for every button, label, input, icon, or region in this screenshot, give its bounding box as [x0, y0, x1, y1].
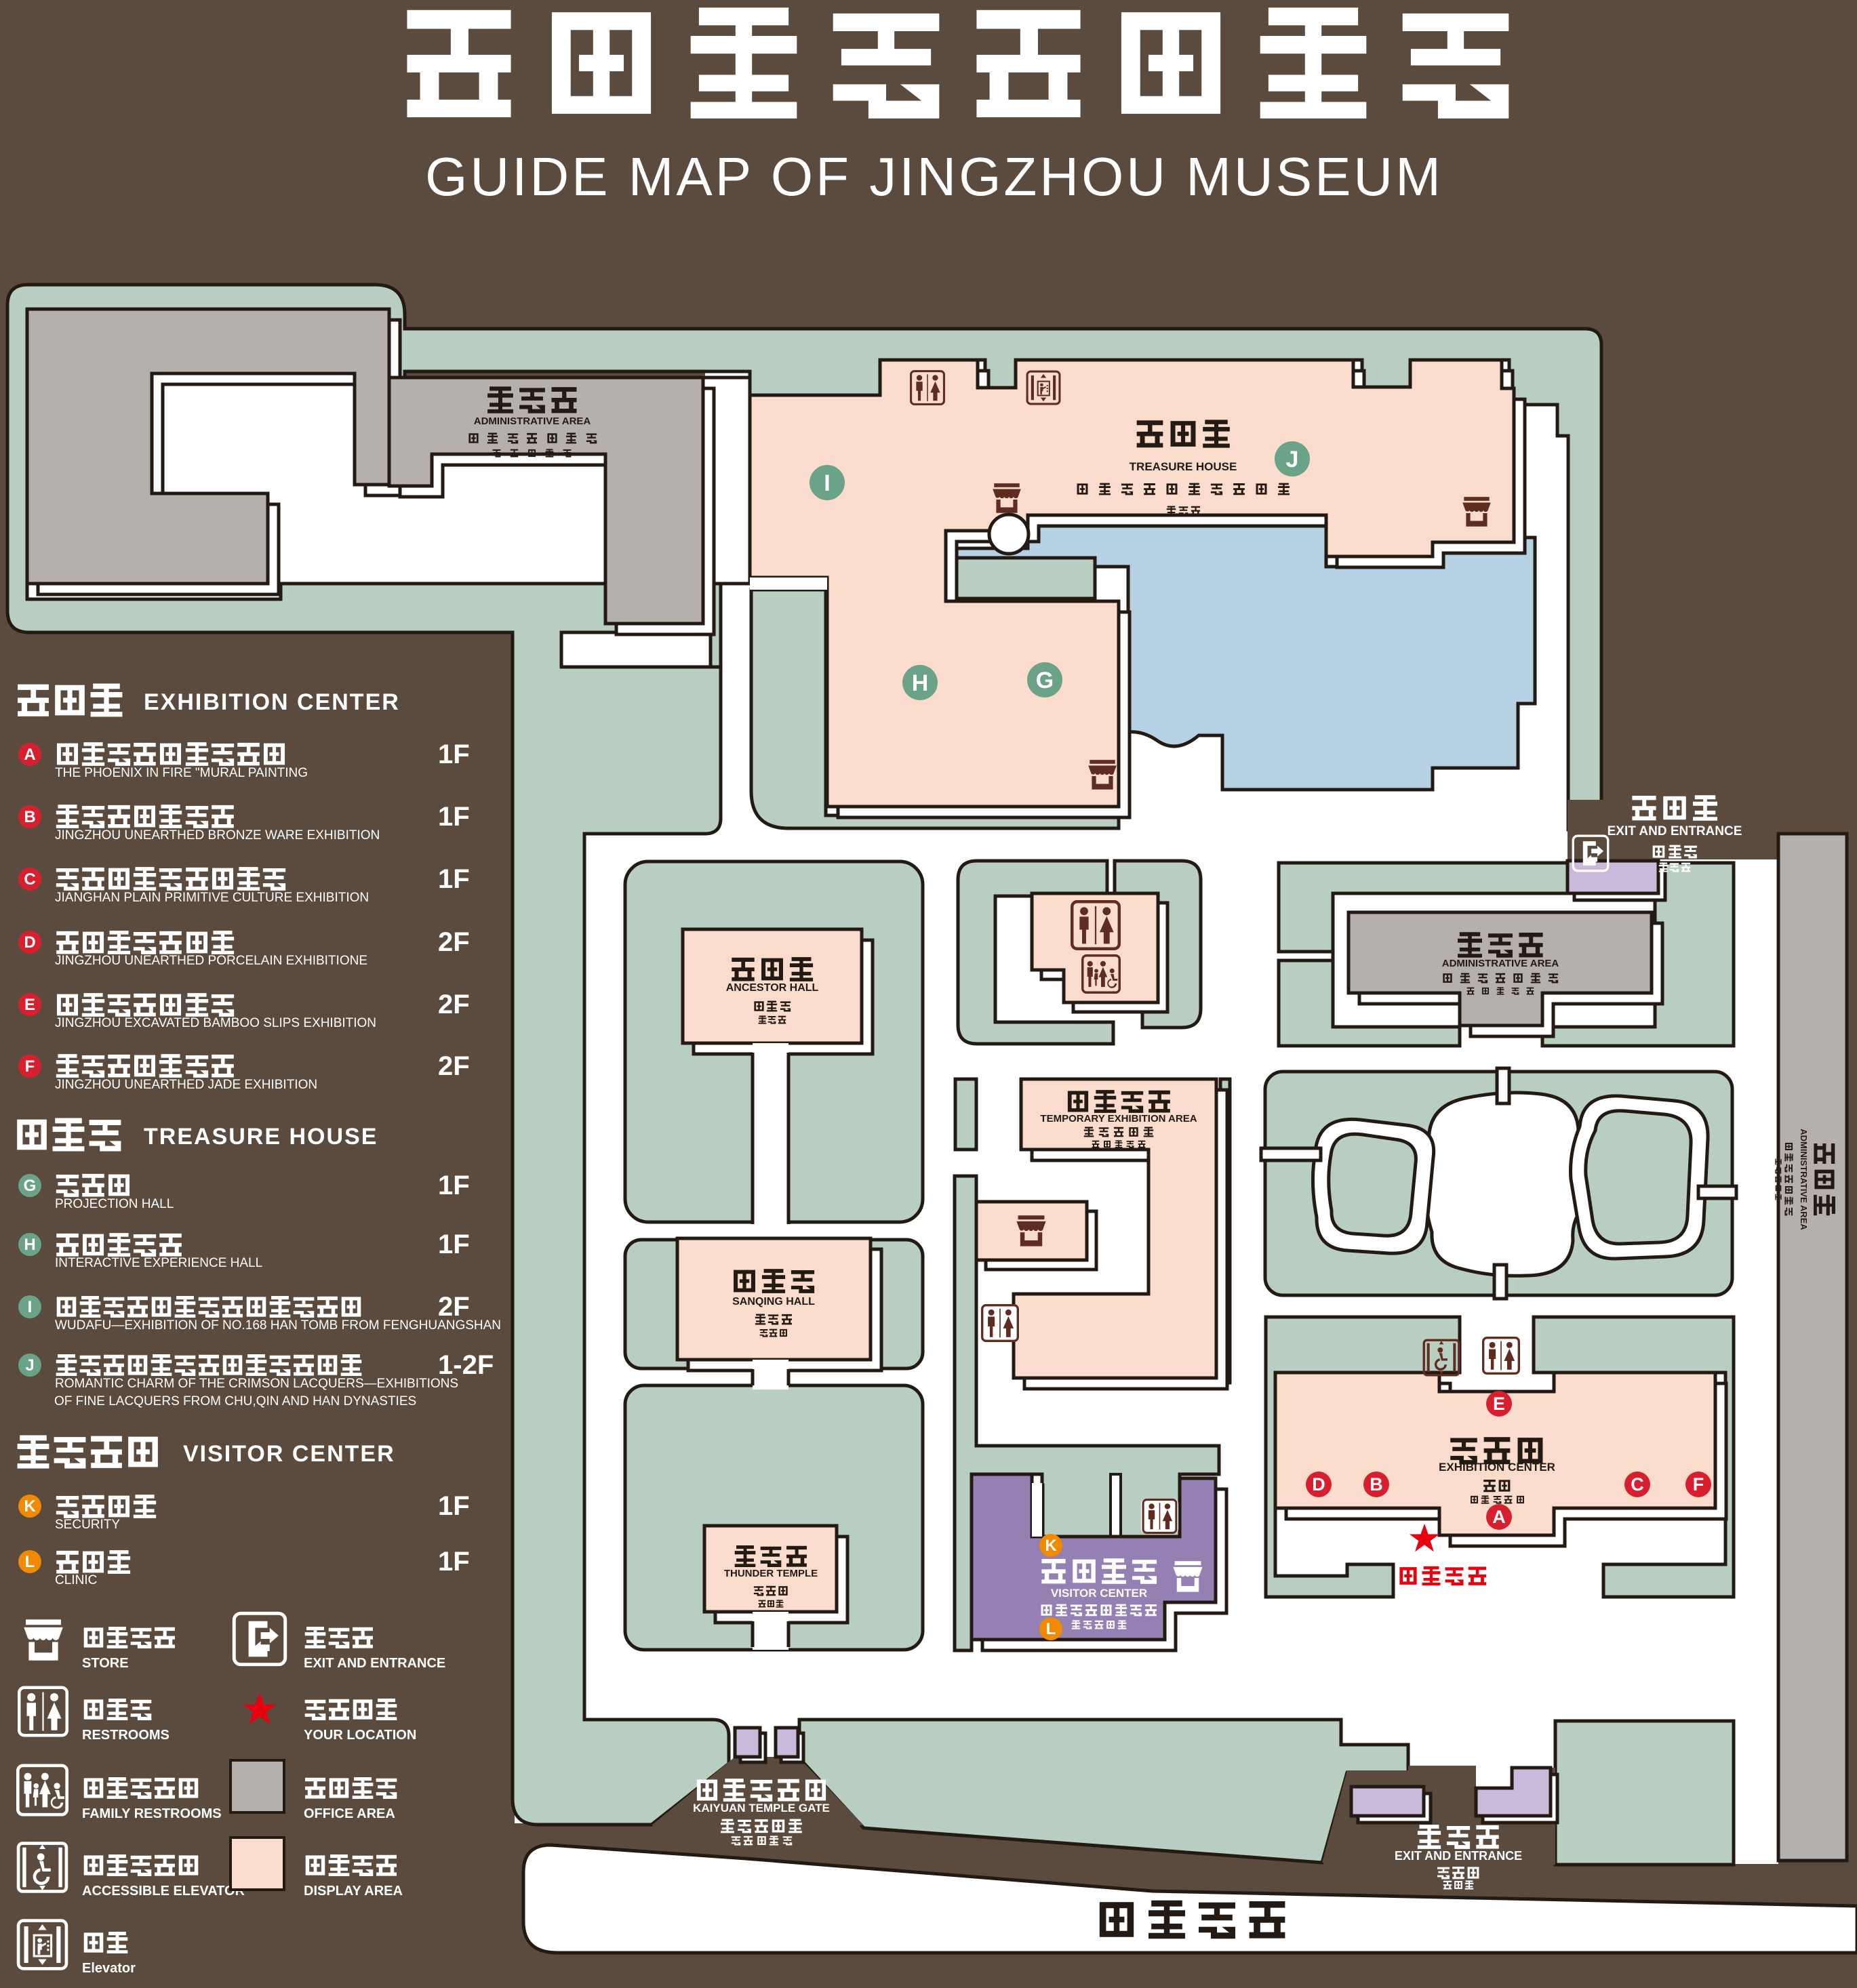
svg-text:EXHIBITION CENTER: EXHIBITION CENTER	[144, 689, 400, 715]
svg-text:THE PHOENIX IN FIRE "MURAL PAI: THE PHOENIX IN FIRE "MURAL PAINTING	[55, 766, 308, 780]
svg-text:1F: 1F	[438, 1230, 470, 1259]
svg-text:KAIYUAN TEMPLE GATE: KAIYUAN TEMPLE GATE	[693, 1802, 830, 1814]
svg-text:ANCESTOR HALL: ANCESTOR HALL	[726, 982, 819, 994]
svg-text:VISITOR CENTER: VISITOR CENTER	[183, 1441, 395, 1467]
svg-text:I: I	[824, 470, 830, 496]
svg-text:2F: 2F	[438, 927, 470, 957]
svg-text:A: A	[24, 746, 35, 764]
svg-text:JINGZHOU UNEARTHED BRONZE WARE: JINGZHOU UNEARTHED BRONZE WARE EXHIBITIO…	[55, 828, 380, 843]
svg-text:B: B	[1370, 1474, 1383, 1495]
svg-text:F: F	[25, 1057, 35, 1076]
svg-text:1F: 1F	[438, 739, 470, 769]
svg-text:ADMINISTRATIVE AREA: ADMINISTRATIVE AREA	[1442, 958, 1559, 969]
svg-text:THUNDER TEMPLE: THUNDER TEMPLE	[724, 1568, 818, 1579]
svg-text:H: H	[912, 670, 929, 696]
svg-text:B: B	[24, 808, 35, 826]
svg-text:1F: 1F	[438, 1491, 470, 1521]
svg-text:JINGZHOU EXCAVATED BAMBOO SLIP: JINGZHOU EXCAVATED BAMBOO SLIPS EXHIBITI…	[55, 1016, 376, 1030]
svg-text:A: A	[1492, 1507, 1506, 1527]
svg-text:E: E	[1493, 1394, 1505, 1414]
svg-text:STORE: STORE	[82, 1656, 129, 1671]
svg-text:JIANGHAN PLAIN PRIMITIVE CULTU: JIANGHAN PLAIN PRIMITIVE CULTURE EXHIBIT…	[55, 891, 369, 905]
svg-text:DISPLAY AREA: DISPLAY AREA	[304, 1884, 403, 1899]
svg-text:1-2F: 1-2F	[438, 1350, 494, 1380]
svg-text:EXIT AND ENTRANCE: EXIT AND ENTRANCE	[1608, 824, 1742, 838]
svg-text:Elevator: Elevator	[82, 1961, 136, 1976]
svg-text:JINGZHOU UNEARTHED PORCELAIN E: JINGZHOU UNEARTHED PORCELAIN EXHIBITIONE	[55, 954, 367, 968]
svg-text:1F: 1F	[438, 1171, 470, 1200]
svg-text:INTERACTIVE EXPERIENCE HALL: INTERACTIVE EXPERIENCE HALL	[55, 1256, 262, 1270]
svg-text:JINGZHOU UNEARTHED JADE EXHIBI: JINGZHOU UNEARTHED JADE EXHIBITION	[55, 1078, 317, 1092]
svg-text:PROJECTION HALL: PROJECTION HALL	[55, 1197, 174, 1211]
svg-text:ACCESSIBLE ELEVATOR: ACCESSIBLE ELEVATOR	[82, 1884, 245, 1899]
svg-text:1F: 1F	[438, 802, 470, 832]
svg-text:L: L	[25, 1553, 35, 1571]
svg-text:YOUR LOCATION: YOUR LOCATION	[304, 1728, 416, 1743]
svg-text:K: K	[24, 1497, 36, 1516]
svg-text:1F: 1F	[438, 1547, 470, 1577]
svg-text:ADMINISTRATIVE AREA: ADMINISTRATIVE AREA	[474, 415, 591, 427]
svg-text:I: I	[28, 1298, 33, 1316]
svg-text:E: E	[24, 996, 35, 1014]
svg-text:J: J	[25, 1356, 34, 1375]
svg-text:EXIT AND ENTRANCE: EXIT AND ENTRANCE	[304, 1656, 445, 1671]
svg-text:EXHIBITION CENTER: EXHIBITION CENTER	[1439, 1461, 1555, 1474]
svg-text:TREASURE HOUSE: TREASURE HOUSE	[1130, 460, 1237, 473]
svg-text:CLINIC: CLINIC	[55, 1573, 97, 1587]
svg-text:SANQING HALL: SANQING HALL	[732, 1296, 815, 1307]
svg-text:2F: 2F	[438, 990, 470, 1019]
svg-text:EXIT AND ENTRANCE: EXIT AND ENTRANCE	[1395, 1849, 1522, 1863]
svg-text:F: F	[1693, 1474, 1704, 1495]
svg-text:OF FINE LACQUERS FROM CHU,QIN: OF FINE LACQUERS FROM CHU,QIN AND HAN DY…	[54, 1394, 416, 1408]
svg-text:TEMPORARY EXHIBITION AREA: TEMPORARY EXHIBITION AREA	[1040, 1113, 1197, 1124]
svg-text:C: C	[24, 870, 35, 889]
svg-text:FAMILY RESTROOMS: FAMILY RESTROOMS	[82, 1806, 222, 1821]
svg-text:2F: 2F	[438, 1051, 470, 1081]
svg-text:ADMINISTRATIVE AREA: ADMINISTRATIVE AREA	[1799, 1129, 1809, 1230]
svg-text:L: L	[1046, 1620, 1056, 1638]
svg-text:OFFICE AREA: OFFICE AREA	[304, 1806, 395, 1821]
svg-text:D: D	[1312, 1474, 1325, 1495]
svg-text:2F: 2F	[438, 1292, 470, 1322]
svg-text:ROMANTIC CHARM OF THE CRIMSON: ROMANTIC CHARM OF THE CRIMSON LACQUERS—E…	[55, 1377, 458, 1391]
svg-text:G: G	[24, 1177, 37, 1195]
svg-text:TREASURE HOUSE: TREASURE HOUSE	[144, 1124, 378, 1150]
svg-text:D: D	[24, 933, 35, 952]
svg-text:SECURITY: SECURITY	[55, 1518, 120, 1532]
svg-text:G: G	[1036, 668, 1054, 693]
svg-text:GUIDE MAP OF JINGZHOU MUSEUM: GUIDE MAP OF JINGZHOU MUSEUM	[425, 146, 1443, 207]
svg-text:1F: 1F	[438, 864, 470, 894]
svg-text:K: K	[1045, 1537, 1057, 1555]
svg-text:J: J	[1286, 447, 1299, 472]
svg-text:VISITOR CENTER: VISITOR CENTER	[1051, 1587, 1147, 1600]
svg-text:H: H	[24, 1236, 35, 1254]
svg-text:RESTROOMS: RESTROOMS	[82, 1728, 169, 1743]
svg-text:WUDAFU—EXHIBITION OF NO.168 HA: WUDAFU—EXHIBITION OF NO.168 HAN TOMB FRO…	[55, 1318, 501, 1333]
svg-text:C: C	[1631, 1474, 1644, 1495]
